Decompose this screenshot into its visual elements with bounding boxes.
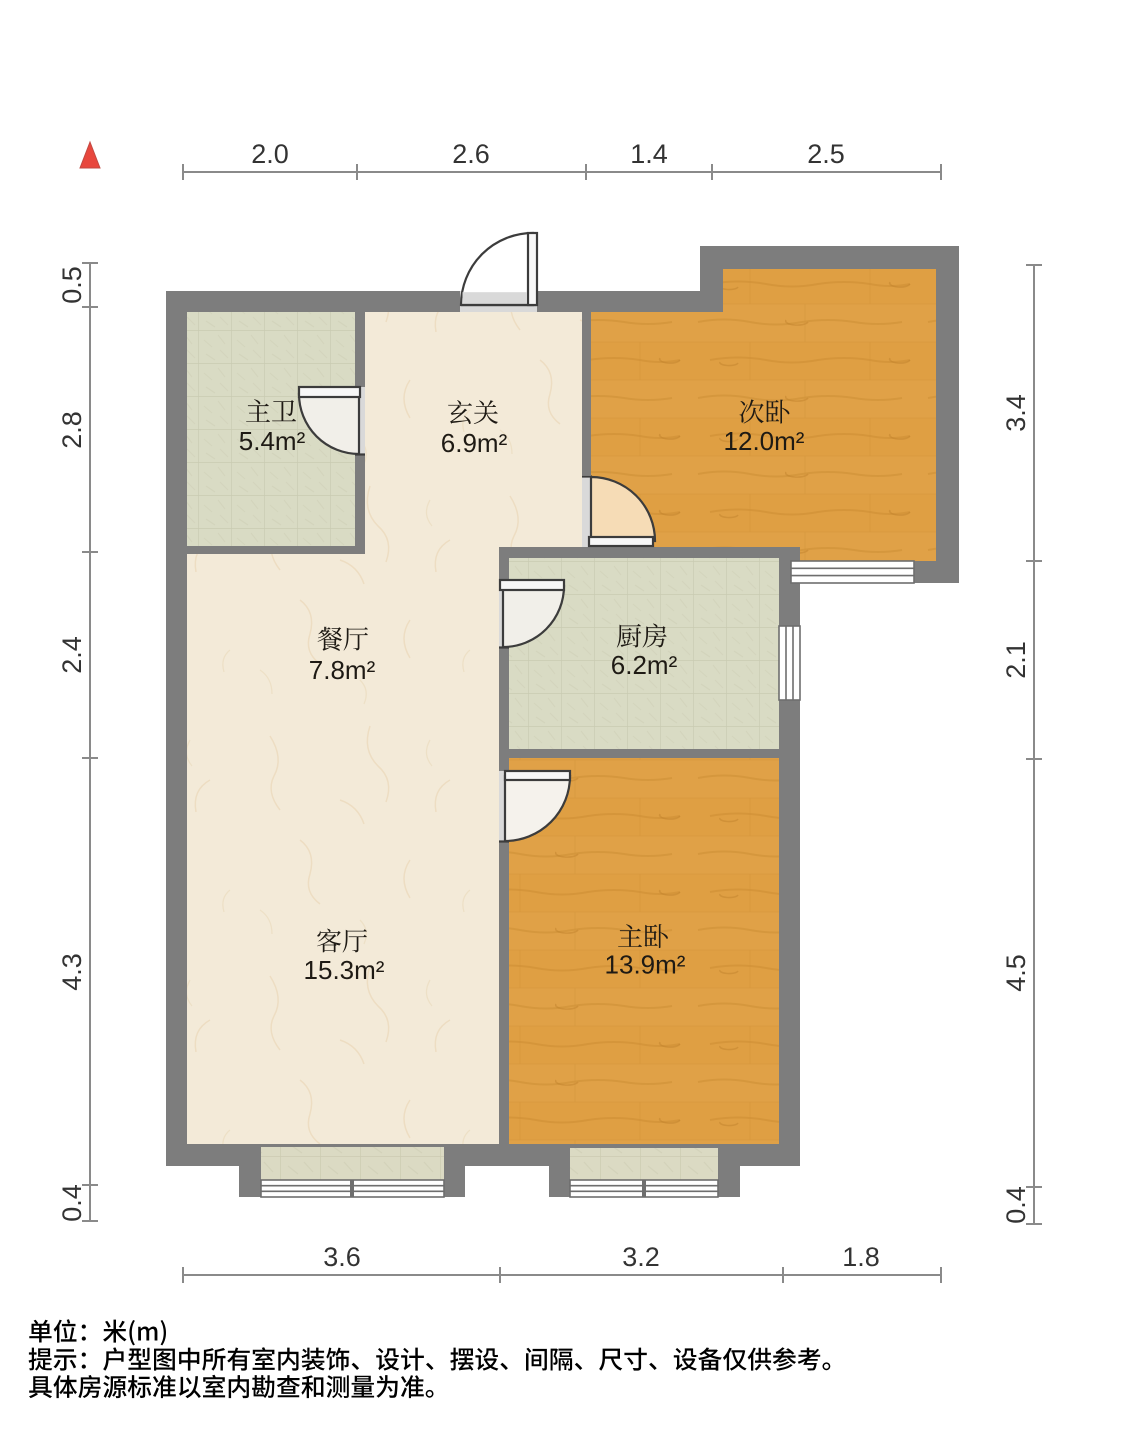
svg-text:13.9m²: 13.9m² xyxy=(605,950,686,980)
svg-text:2.5: 2.5 xyxy=(807,139,845,169)
svg-text:3.2: 3.2 xyxy=(622,1242,660,1272)
svg-text:6.9m²: 6.9m² xyxy=(441,428,508,458)
svg-text:0.4: 0.4 xyxy=(57,1184,87,1222)
svg-text:2.4: 2.4 xyxy=(57,636,87,674)
svg-text:6.2m²: 6.2m² xyxy=(611,650,678,680)
svg-text:0.4: 0.4 xyxy=(1001,1186,1031,1224)
svg-text:12.0m²: 12.0m² xyxy=(724,426,805,456)
svg-text:4.3: 4.3 xyxy=(57,953,87,991)
svg-text:15.3m²: 15.3m² xyxy=(304,955,385,985)
svg-text:1.4: 1.4 xyxy=(630,139,668,169)
svg-text:1.8: 1.8 xyxy=(842,1242,880,1272)
svg-text:4.5: 4.5 xyxy=(1001,954,1031,992)
svg-text:0.5: 0.5 xyxy=(57,266,87,304)
svg-text:5.4m²: 5.4m² xyxy=(239,426,306,456)
svg-text:3.6: 3.6 xyxy=(323,1242,361,1272)
svg-text:7.8m²: 7.8m² xyxy=(309,655,376,685)
svg-text:2.8: 2.8 xyxy=(57,411,87,449)
svg-text:2.1: 2.1 xyxy=(1001,641,1031,679)
svg-text:3.4: 3.4 xyxy=(1001,394,1031,432)
svg-text:2.0: 2.0 xyxy=(251,139,289,169)
svg-text:2.6: 2.6 xyxy=(452,139,490,169)
